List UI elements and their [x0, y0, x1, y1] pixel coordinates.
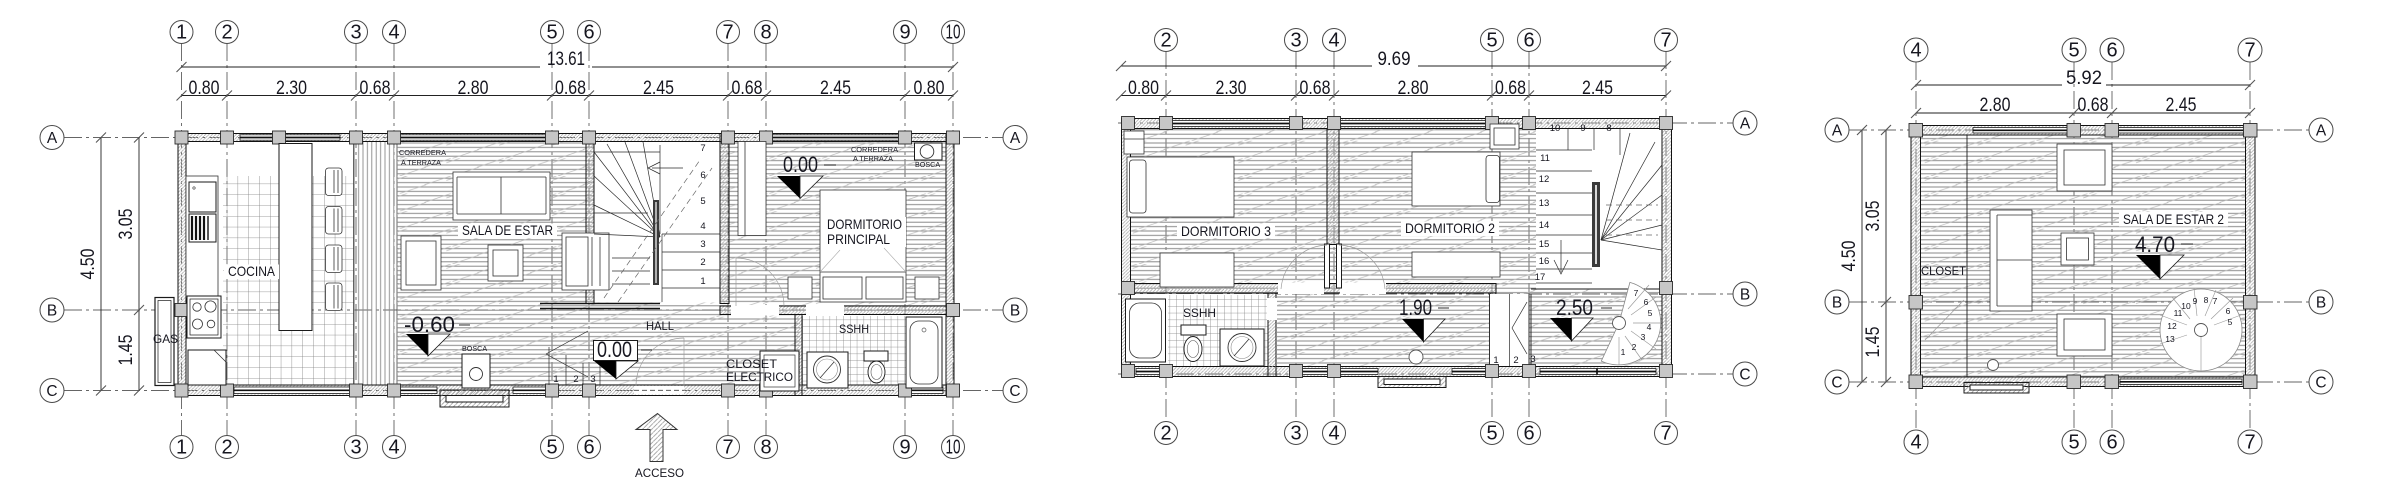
svg-text:9: 9	[1580, 123, 1585, 134]
svg-text:6: 6	[2106, 40, 2117, 62]
svg-text:HALL: HALL	[646, 319, 674, 333]
svg-text:5.92: 5.92	[2066, 68, 2102, 89]
svg-text:0.68: 0.68	[1300, 78, 1331, 99]
svg-text:7: 7	[1660, 423, 1671, 445]
svg-text:DORMITORIO 3: DORMITORIO 3	[1181, 223, 1271, 239]
svg-text:2: 2	[1160, 423, 1171, 445]
svg-text:2.45: 2.45	[820, 78, 851, 99]
svg-text:2: 2	[1513, 355, 1518, 366]
svg-text:16: 16	[1539, 256, 1550, 267]
svg-text:6: 6	[1523, 423, 1534, 445]
svg-text:SSHH: SSHH	[1183, 306, 1216, 320]
svg-text:13: 13	[1539, 198, 1550, 209]
svg-text:2.80: 2.80	[1980, 95, 2011, 116]
svg-text:2.30: 2.30	[276, 78, 307, 99]
svg-text:C: C	[46, 383, 57, 400]
svg-text:4.50: 4.50	[78, 249, 99, 280]
svg-text:11: 11	[1540, 153, 1550, 164]
svg-text:5: 5	[1486, 423, 1497, 445]
svg-text:CLOSET: CLOSET	[726, 357, 778, 371]
svg-text:9: 9	[899, 22, 910, 44]
svg-text:A: A	[1010, 130, 1021, 147]
svg-text:2: 2	[1632, 342, 1637, 352]
svg-text:5: 5	[2228, 317, 2233, 327]
svg-text:1: 1	[1493, 355, 1498, 366]
svg-text:3: 3	[700, 239, 705, 250]
svg-text:4.70: 4.70	[2135, 232, 2175, 257]
svg-text:B: B	[1010, 303, 1020, 320]
svg-text:13.61: 13.61	[547, 49, 585, 70]
svg-text:7: 7	[2244, 432, 2255, 454]
svg-text:COCINA: COCINA	[228, 263, 276, 279]
svg-text:4: 4	[1328, 30, 1339, 52]
svg-text:10: 10	[2181, 301, 2191, 311]
svg-text:CLOSET: CLOSET	[1921, 264, 1967, 278]
svg-text:1: 1	[1621, 347, 1626, 357]
svg-text:6: 6	[1644, 297, 1649, 307]
svg-text:1: 1	[553, 374, 558, 385]
svg-text:8: 8	[2204, 295, 2209, 305]
svg-text:DORMITORIO 2: DORMITORIO 2	[1405, 220, 1495, 236]
svg-text:1: 1	[700, 276, 705, 287]
svg-text:B: B	[1740, 287, 1750, 304]
svg-text:8: 8	[1606, 123, 1611, 134]
svg-text:5: 5	[1648, 308, 1653, 318]
svg-text:A TERRAZA: A TERRAZA	[401, 158, 441, 167]
svg-text:2: 2	[221, 437, 232, 459]
svg-text:15: 15	[1539, 239, 1550, 250]
svg-text:A: A	[47, 130, 58, 147]
svg-text:1: 1	[176, 22, 187, 44]
svg-text:0.68: 0.68	[1495, 78, 1526, 99]
svg-text:A: A	[1832, 123, 1843, 140]
svg-text:SALA DE ESTAR 2: SALA DE ESTAR 2	[2123, 211, 2224, 227]
svg-text:10: 10	[1550, 123, 1561, 134]
svg-text:6: 6	[583, 22, 594, 44]
svg-text:C: C	[1009, 383, 1020, 400]
svg-text:4: 4	[388, 437, 399, 459]
svg-text:2.45: 2.45	[2166, 95, 2197, 116]
svg-text:4: 4	[388, 22, 399, 44]
svg-text:1.90: 1.90	[1399, 295, 1432, 320]
svg-text:4: 4	[1328, 423, 1339, 445]
svg-text:7: 7	[1634, 288, 1639, 298]
svg-text:4: 4	[700, 221, 705, 232]
svg-text:B: B	[47, 303, 57, 320]
svg-text:SALA DE ESTAR: SALA DE ESTAR	[462, 222, 553, 238]
svg-text:ELECTRICO: ELECTRICO	[726, 370, 793, 384]
svg-text:5: 5	[2068, 40, 2079, 62]
svg-text:10: 10	[946, 437, 961, 459]
svg-text:5: 5	[700, 196, 705, 207]
svg-text:6: 6	[2106, 432, 2117, 454]
svg-text:PRINCIPAL: PRINCIPAL	[827, 231, 890, 247]
svg-text:A: A	[1740, 116, 1751, 133]
svg-text:1.45: 1.45	[1863, 327, 1884, 358]
svg-text:6: 6	[700, 170, 705, 181]
svg-text:3: 3	[1290, 30, 1301, 52]
svg-text:GAS: GAS	[153, 332, 178, 346]
svg-text:ACCESO: ACCESO	[635, 466, 684, 480]
svg-text:C: C	[2315, 375, 2326, 392]
svg-text:2.50: 2.50	[1556, 295, 1593, 320]
svg-text:0.80: 0.80	[914, 78, 945, 99]
svg-text:C: C	[1739, 367, 1750, 384]
svg-text:B: B	[1832, 295, 1842, 312]
svg-text:0.00: 0.00	[783, 152, 818, 177]
svg-text:2: 2	[1160, 30, 1171, 52]
svg-text:0.68: 0.68	[555, 78, 586, 99]
svg-text:9: 9	[2193, 296, 2198, 306]
svg-text:A: A	[2316, 123, 2327, 140]
svg-text:7: 7	[2244, 40, 2255, 62]
svg-text:1.45: 1.45	[116, 335, 137, 366]
svg-text:0.00: 0.00	[597, 337, 632, 362]
svg-text:6: 6	[1523, 30, 1534, 52]
svg-text:2.45: 2.45	[643, 78, 674, 99]
svg-text:14: 14	[1539, 220, 1550, 231]
svg-text:BOSCA: BOSCA	[915, 160, 940, 169]
svg-text:0.68: 0.68	[360, 78, 391, 99]
svg-text:B: B	[2316, 295, 2326, 312]
svg-text:7: 7	[700, 143, 705, 154]
svg-text:13: 13	[2165, 334, 2175, 344]
svg-text:4: 4	[1910, 40, 1921, 62]
svg-text:2.45: 2.45	[1582, 78, 1613, 99]
svg-text:7: 7	[1660, 30, 1671, 52]
svg-text:8: 8	[760, 437, 771, 459]
svg-text:17: 17	[1535, 272, 1546, 283]
svg-text:SSHH: SSHH	[839, 322, 869, 336]
svg-text:3: 3	[590, 374, 595, 385]
svg-text:2: 2	[700, 257, 705, 268]
svg-text:3: 3	[1641, 332, 1646, 342]
svg-text:2.30: 2.30	[1216, 78, 1247, 99]
svg-text:BOSCA: BOSCA	[462, 344, 487, 353]
svg-text:5: 5	[546, 437, 557, 459]
svg-text:5: 5	[2068, 432, 2079, 454]
svg-text:0.80: 0.80	[1128, 78, 1159, 99]
svg-text:3.05: 3.05	[116, 209, 137, 240]
svg-text:2.80: 2.80	[1398, 78, 1429, 99]
svg-text:0.80: 0.80	[189, 78, 220, 99]
svg-text:2: 2	[573, 374, 578, 385]
svg-text:7: 7	[722, 22, 733, 44]
svg-text:CORREDERA: CORREDERA	[851, 145, 898, 154]
svg-text:7: 7	[2213, 296, 2218, 306]
svg-text:DORMITORIO: DORMITORIO	[827, 216, 902, 232]
svg-text:1: 1	[176, 437, 187, 459]
svg-text:0.68: 0.68	[732, 78, 763, 99]
svg-text:12: 12	[1539, 174, 1550, 185]
svg-text:8: 8	[760, 22, 771, 44]
svg-text:6: 6	[583, 437, 594, 459]
svg-text:2: 2	[221, 22, 232, 44]
svg-text:12: 12	[2167, 321, 2177, 331]
svg-text:-0.60: -0.60	[404, 312, 455, 337]
svg-text:10: 10	[946, 22, 961, 44]
svg-text:7: 7	[722, 437, 733, 459]
svg-text:3: 3	[1530, 354, 1535, 365]
svg-text:CORREDERA: CORREDERA	[399, 148, 446, 157]
svg-text:4: 4	[1910, 432, 1921, 454]
svg-text:3: 3	[350, 437, 361, 459]
svg-text:4: 4	[1647, 322, 1652, 332]
svg-text:3.05: 3.05	[1863, 201, 1884, 232]
svg-text:A TERRAZA: A TERRAZA	[853, 154, 893, 163]
svg-text:5: 5	[546, 22, 557, 44]
svg-text:2.80: 2.80	[458, 78, 489, 99]
svg-text:4.50: 4.50	[1839, 241, 1860, 272]
svg-text:3: 3	[350, 22, 361, 44]
svg-text:9.69: 9.69	[1378, 49, 1411, 70]
svg-text:9: 9	[899, 437, 910, 459]
svg-text:C: C	[1831, 375, 1842, 392]
svg-text:6: 6	[2226, 306, 2231, 316]
svg-text:0.68: 0.68	[2078, 95, 2109, 116]
svg-text:5: 5	[1486, 30, 1497, 52]
svg-text:3: 3	[1290, 423, 1301, 445]
